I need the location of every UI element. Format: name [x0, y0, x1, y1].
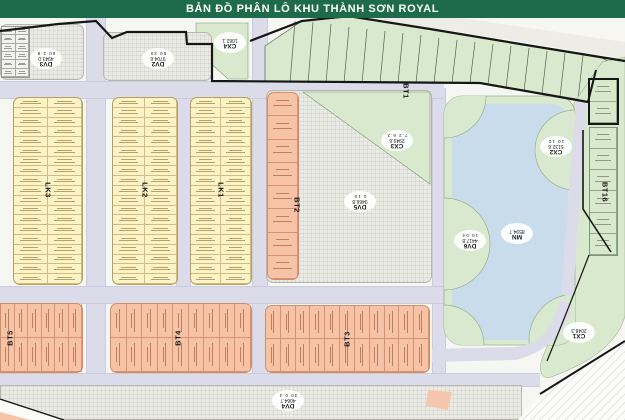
- lot-cell: [221, 127, 251, 137]
- dv3-lots: [2, 27, 29, 77]
- lot-cell: [268, 140, 298, 163]
- lot-cell: [15, 338, 29, 372]
- lot-cell: [191, 118, 221, 128]
- block-label-dv3: DV3 4943.0 50 3.8: [30, 48, 62, 69]
- lot-cell: [14, 127, 48, 137]
- lot-cell: [310, 306, 325, 339]
- lot-cell: [55, 338, 69, 372]
- lot-cell: [590, 80, 617, 102]
- lot-cell: [189, 304, 205, 338]
- strip-label-lk2: LK2: [141, 182, 150, 198]
- lot-cell: [14, 245, 48, 255]
- lot-cell: [113, 166, 145, 176]
- block-label-dv2: DV2 9704.6 50 30: [142, 48, 174, 69]
- lot-cell: [590, 149, 617, 170]
- lot-cell: [111, 304, 127, 338]
- lot-cell: [145, 225, 177, 235]
- lot-cell: [385, 339, 400, 372]
- lot-cell: [142, 338, 158, 372]
- lot-cell: [48, 196, 82, 206]
- lot-cell: [14, 166, 48, 176]
- lot-cell: [14, 255, 48, 265]
- lot-cell: [221, 274, 251, 284]
- lot-cell: [296, 306, 311, 339]
- lot-cell: [111, 338, 127, 372]
- lot-cell: [221, 186, 251, 196]
- lot-cell: [191, 98, 221, 108]
- strip-label-bt16: BT16: [601, 182, 610, 202]
- lot-cell: [221, 108, 251, 118]
- lot-cell: [399, 306, 414, 339]
- lot-cell: [191, 264, 221, 274]
- lot-cell: [266, 339, 281, 372]
- lot-cell: [191, 147, 221, 157]
- lot-cell: [48, 147, 82, 157]
- lot-cell: [414, 306, 429, 339]
- block-label-dv4: DV4 4064.7 30 0.4: [272, 390, 304, 411]
- lot-cell: [221, 147, 251, 157]
- lot-cell: [189, 338, 205, 372]
- block-area: 2048.3: [571, 326, 586, 331]
- lot-cell: [145, 215, 177, 225]
- lot-cell: [370, 306, 385, 339]
- lot-cell: [590, 102, 617, 124]
- lot-cell: [16, 27, 30, 35]
- lot-cell: [113, 206, 145, 216]
- lot-cell: [268, 93, 298, 116]
- lot-cell: [14, 215, 48, 225]
- lot-cell: [15, 304, 29, 338]
- lot-cell: [145, 157, 177, 167]
- lot-cell: [191, 206, 221, 216]
- lot-cell: [590, 213, 617, 234]
- lot-cell: [28, 304, 42, 338]
- lot-cell: [2, 44, 16, 52]
- lot-cell: [385, 306, 400, 339]
- block-dims: 50 3.8: [37, 49, 56, 54]
- lot-cell: [145, 98, 177, 108]
- lot-cell: [2, 60, 16, 68]
- lot-cell: [145, 235, 177, 245]
- lot-cell: [113, 108, 145, 118]
- lot-cell: [191, 157, 221, 167]
- lot-cell: [204, 304, 220, 338]
- lot-cell: [235, 304, 251, 338]
- lot-cell: [2, 27, 16, 35]
- lot-cell: [268, 256, 298, 279]
- lot-cell: [48, 137, 82, 147]
- lot-cell: [145, 245, 177, 255]
- lot-cell: [191, 108, 221, 118]
- lot-cell: [14, 225, 48, 235]
- block-dims: 10 10: [548, 137, 564, 142]
- strip-label-lk3: LK3: [44, 182, 53, 198]
- lot-cell: [221, 98, 251, 108]
- lot-cell: [266, 306, 281, 339]
- lot-cell: [14, 235, 48, 245]
- lot-cell: [414, 339, 429, 372]
- block-dims: 10 04: [462, 231, 478, 236]
- lot-cell: [2, 69, 16, 77]
- lot-cell: [191, 235, 221, 245]
- lot-cell: [16, 60, 30, 68]
- lot-cell: [14, 108, 48, 118]
- lot-cell: [48, 225, 82, 235]
- lot-cell: [127, 338, 143, 372]
- lot-cell: [145, 206, 177, 216]
- lot-cell: [355, 339, 370, 372]
- bt16-upper-lots: [590, 80, 617, 123]
- lot-cell: [399, 339, 414, 372]
- lot-cell: [113, 98, 145, 108]
- lot-cell: [42, 338, 56, 372]
- lot-cell: [48, 215, 82, 225]
- lot-cell: [113, 215, 145, 225]
- lot-cell: [145, 255, 177, 265]
- lot-cell: [220, 304, 236, 338]
- lot-cell: [28, 338, 42, 372]
- lot-cell: [220, 338, 236, 372]
- strip-label-bt5: BT5: [6, 330, 15, 346]
- lot-cell: [268, 233, 298, 256]
- lot-cell: [113, 255, 145, 265]
- lot-cell: [590, 234, 617, 255]
- lot-cell: [14, 274, 48, 284]
- block-area: 1062.1: [222, 36, 237, 41]
- block-label-cx1: CX1 2048.3: [563, 322, 595, 343]
- block-dv4: [0, 385, 522, 420]
- lot-cell: [48, 108, 82, 118]
- block-dims: 7.2 6.2: [387, 131, 408, 136]
- lot-cell: [113, 118, 145, 128]
- lot-cell: [48, 176, 82, 186]
- lot-cell: [42, 304, 56, 338]
- lot-cell: [113, 127, 145, 137]
- strip-label-lk1: LK1: [217, 182, 226, 198]
- page-title: BẢN ĐỒ PHÂN LÔ KHU THÀNH SƠN ROYAL: [0, 0, 625, 18]
- lot-cell: [191, 127, 221, 137]
- lot-cell: [48, 274, 82, 284]
- block-label-cx4: CX4 1062.1: [214, 32, 246, 53]
- lot-cell: [145, 196, 177, 206]
- lot-cell: [145, 118, 177, 128]
- strip-label-bt3: BT3: [343, 331, 352, 347]
- lot-cell: [370, 339, 385, 372]
- lot-cell: [113, 137, 145, 147]
- block-bt1: [265, 17, 612, 101]
- lot-cell: [221, 225, 251, 235]
- lot-cell: [310, 339, 325, 372]
- lot-cell: [48, 127, 82, 137]
- lot-cell: [204, 338, 220, 372]
- lot-cell: [268, 163, 298, 186]
- lot-cell: [16, 35, 30, 43]
- lot-cell: [16, 44, 30, 52]
- lot-cell: [113, 245, 145, 255]
- strip-label-bt4: BT4: [174, 330, 183, 346]
- plan-map-page: BẢN ĐỒ PHÂN LÔ KHU THÀNH SƠN ROYAL: [0, 0, 625, 420]
- lot-cell: [590, 128, 617, 149]
- lot-cell: [14, 118, 48, 128]
- block-area: 8594.7: [509, 227, 524, 232]
- lot-cell: [113, 157, 145, 167]
- lot-cell: [268, 116, 298, 139]
- lot-cell: [325, 306, 340, 339]
- lot-cell: [2, 52, 16, 60]
- lot-cell: [48, 157, 82, 167]
- lot-cell: [14, 137, 48, 147]
- lot-cell: [127, 304, 143, 338]
- block-bt16-upper: [588, 78, 619, 125]
- lot-cell: [145, 147, 177, 157]
- lot-cell: [14, 206, 48, 216]
- lot-cell: [113, 225, 145, 235]
- lot-cell: [235, 338, 251, 372]
- lot-cell: [191, 215, 221, 225]
- lot-cell: [69, 304, 83, 338]
- lot-cell: [113, 274, 145, 284]
- lot-cell: [145, 166, 177, 176]
- lot-cell: [145, 127, 177, 137]
- lot-cell: [48, 255, 82, 265]
- lot-cell: [355, 306, 370, 339]
- block-label-cx3: CX3 2949.6 7.2 6.2: [381, 130, 413, 151]
- lot-cell: [48, 245, 82, 255]
- block-dims: 50 30: [150, 49, 166, 54]
- lot-cell: [221, 196, 251, 206]
- lot-cell: [16, 69, 30, 77]
- block-label-dv6: DV6 4417.8 10 04: [454, 230, 486, 251]
- lot-cell: [281, 306, 296, 339]
- lot-cell: [221, 137, 251, 147]
- lot-cell: [221, 176, 251, 186]
- dv3-lot-column: [1, 26, 30, 78]
- lot-cell: [145, 137, 177, 147]
- lot-cell: [325, 339, 340, 372]
- lot-cell: [55, 304, 69, 338]
- lot-cell: [48, 118, 82, 128]
- lot-cell: [158, 338, 174, 372]
- lot-cell: [113, 147, 145, 157]
- lot-cell: [14, 264, 48, 274]
- lot-cell: [48, 206, 82, 216]
- lot-cell: [191, 274, 221, 284]
- lot-cell: [158, 304, 174, 338]
- lot-cell: [221, 235, 251, 245]
- block-label-mn: MN 8594.7: [501, 223, 533, 244]
- lot-cell: [48, 186, 82, 196]
- lot-cell: [191, 225, 221, 235]
- lot-cell: [142, 304, 158, 338]
- lot-cell: [145, 274, 177, 284]
- lot-cell: [145, 186, 177, 196]
- strip-label-bt2: BT2: [293, 197, 302, 213]
- lot-cell: [69, 338, 83, 372]
- lot-cell: [221, 245, 251, 255]
- block-dims: 30 0.4: [279, 391, 298, 396]
- lot-cell: [14, 147, 48, 157]
- block-dims: 2 10: [354, 192, 367, 197]
- lot-cell: [221, 206, 251, 216]
- lot-cell: [48, 264, 82, 274]
- lot-cell: [48, 235, 82, 245]
- lot-cell: [191, 255, 221, 265]
- lot-cell: [281, 339, 296, 372]
- lot-cell: [113, 264, 145, 274]
- bt2-lots: [268, 93, 298, 279]
- lot-cell: [48, 98, 82, 108]
- strip-label-bt1: BT1: [402, 83, 411, 99]
- lot-cell: [145, 264, 177, 274]
- lot-cell: [221, 264, 251, 274]
- map-canvas: LK3 LK2 LK1 BT2 BT1 BT16 BT5 BT4 BT3 DV3…: [0, 0, 625, 420]
- lot-cell: [145, 176, 177, 186]
- lot-cell: [48, 166, 82, 176]
- block-bt2: [267, 92, 299, 280]
- block-label-cx2: CX2 5132.6 10 10: [540, 136, 572, 157]
- block-label-dv5: DV5 9466.8 2 10: [344, 191, 376, 212]
- lot-cell: [296, 339, 311, 372]
- lot-cell: [191, 166, 221, 176]
- lot-cell: [221, 215, 251, 225]
- lot-cell: [221, 157, 251, 167]
- lot-cell: [221, 118, 251, 128]
- lot-cell: [191, 245, 221, 255]
- lot-cell: [14, 98, 48, 108]
- lot-cell: [2, 35, 16, 43]
- lot-cell: [14, 157, 48, 167]
- lot-cell: [221, 255, 251, 265]
- lot-cell: [221, 166, 251, 176]
- lot-cell: [191, 137, 221, 147]
- lot-cell: [145, 108, 177, 118]
- lot-cell: [113, 235, 145, 245]
- lot-cell: [16, 52, 30, 60]
